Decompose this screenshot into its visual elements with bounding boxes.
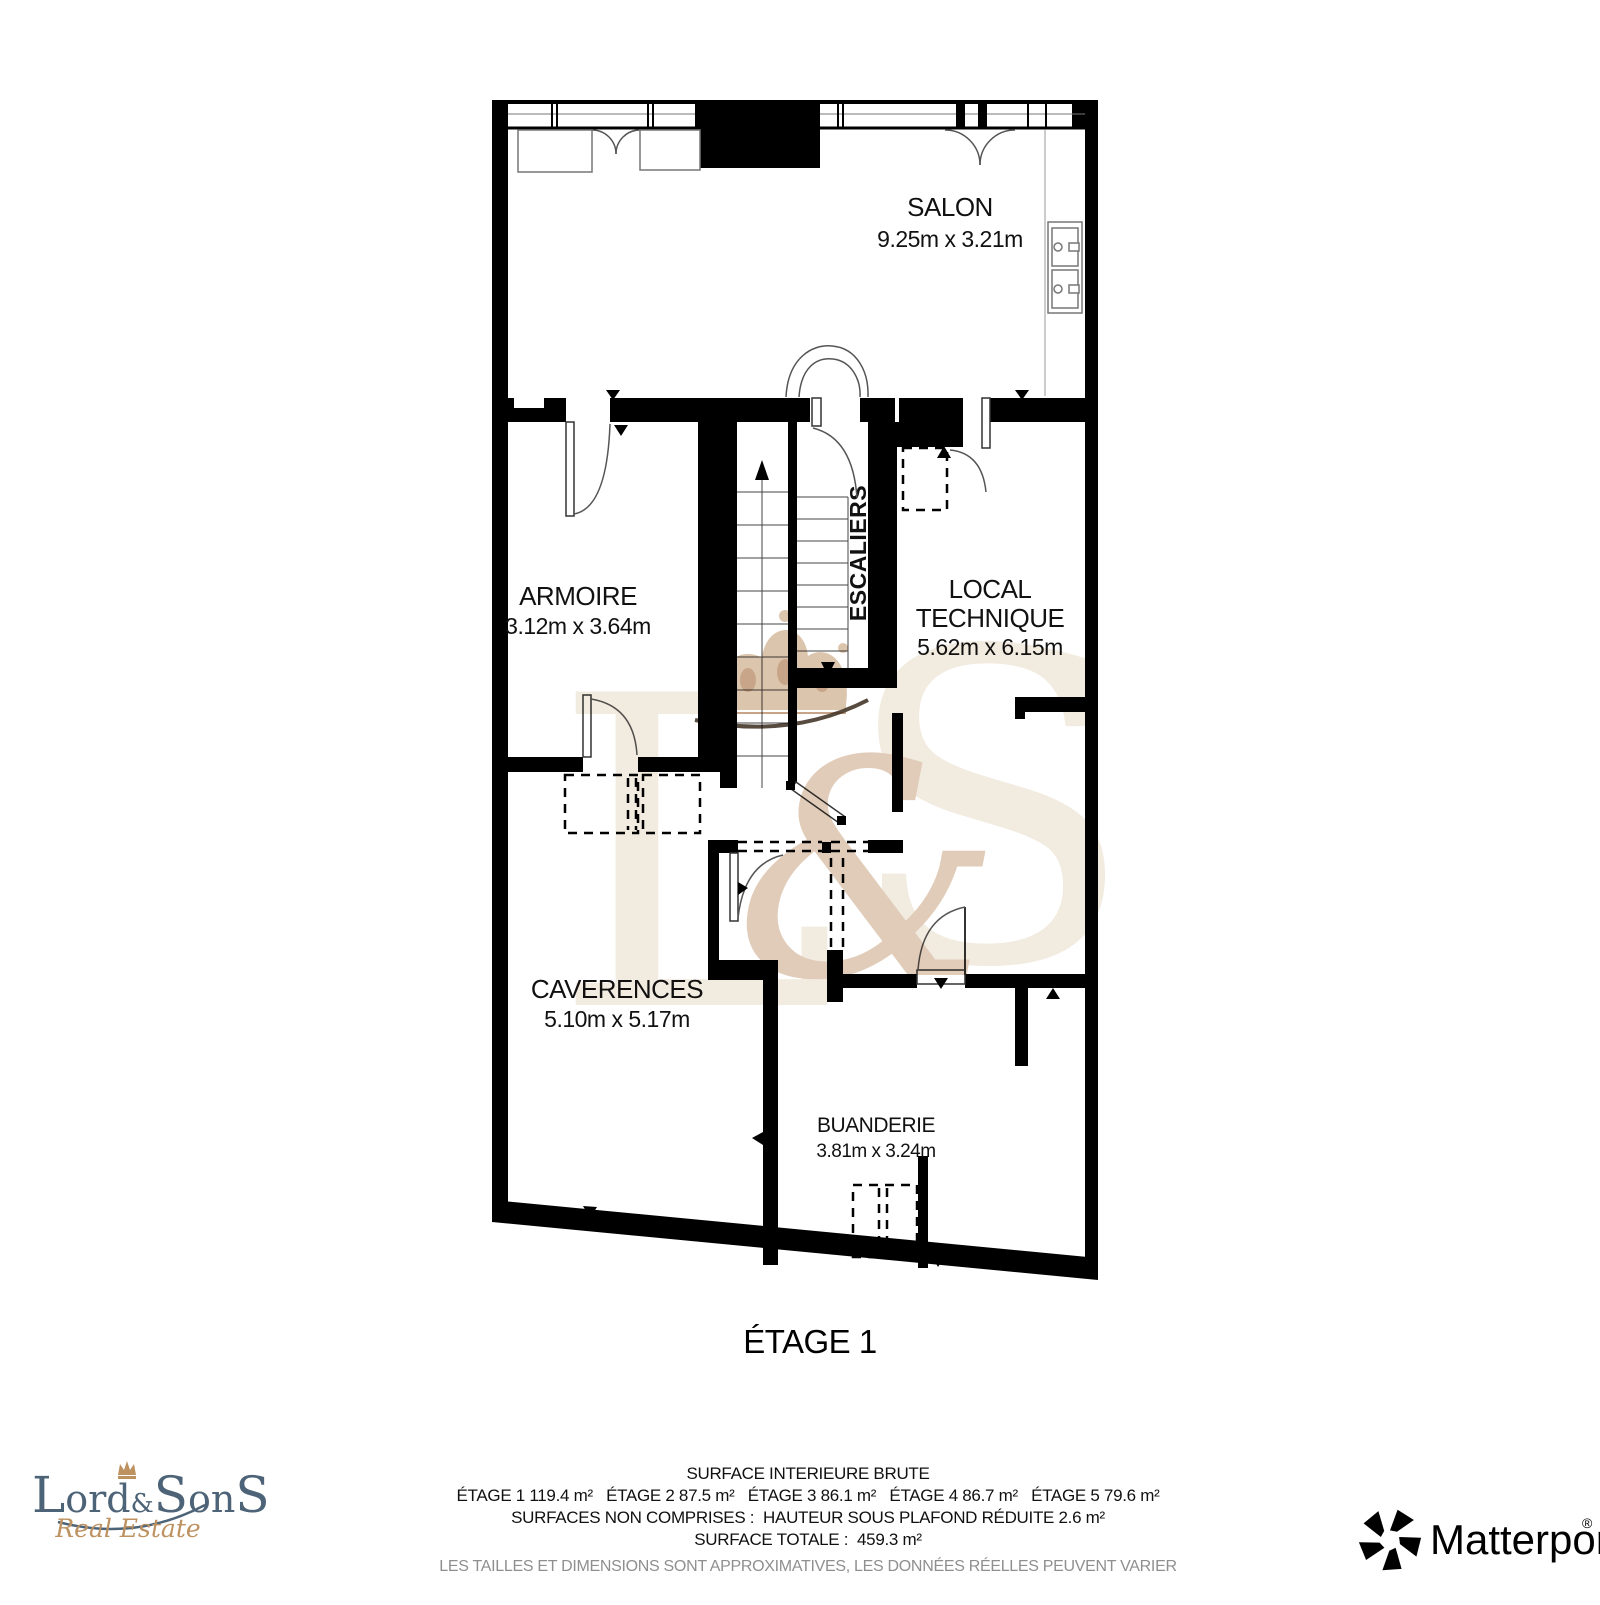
floor-surfaces: ÉTAGE 1 119.4 m² ÉTAGE 2 87.5 m² ÉTAGE 3… [457, 1486, 1161, 1505]
watermark-ampersand: & [735, 697, 1002, 1046]
surfaces-not-included: SURFACES NON COMPRISES : HAUTEUR SOUS PL… [511, 1508, 1105, 1527]
room-label-buanderie: BUANDERIE [817, 1114, 936, 1137]
stair-up-arrow-icon [755, 460, 769, 480]
double-door-right-arc [945, 130, 980, 165]
room-label-salon: SALON [907, 192, 993, 222]
room-dims-salon: 9.25m x 3.21m [877, 226, 1023, 252]
agency-logo: Lord&SonS Real Estate [32, 1461, 270, 1543]
matterport-wordmark: Matterport [1430, 1516, 1600, 1563]
lt-door-leaf [982, 398, 990, 448]
cabinet-right [640, 130, 700, 170]
matterport-logo: Matterport ® [1359, 1510, 1600, 1570]
disclaimer: LES TAILLES ET DIMENSIONS SONT APPROXIMA… [439, 1556, 1176, 1575]
wall-block-salon [695, 100, 820, 168]
stair-arch-outer [786, 346, 868, 397]
surface-total: SURFACE TOTALE : 459.3 m² [694, 1530, 922, 1549]
agency-tagline: Real Estate [54, 1514, 200, 1543]
sink-unit [1048, 222, 1082, 313]
salon-furniture [518, 130, 1082, 396]
agency-crown-icon [118, 1461, 136, 1479]
cabinet-left [518, 130, 592, 172]
stair-arch-inner [799, 359, 860, 397]
floor-plan-canvas: ESCALIERS [0, 0, 1600, 1600]
floor-title: ÉTAGE 1 [743, 1323, 876, 1360]
floor-plan-page: ESCALIERS [0, 0, 1600, 1600]
matterport-icon [1359, 1510, 1421, 1570]
surface-summary: SURFACE INTERIEURE BRUTE ÉTAGE 1 119.4 m… [439, 1464, 1176, 1575]
wall-left [492, 100, 508, 1210]
matterport-registered-icon: ® [1582, 1515, 1593, 1531]
agency-letter: S [235, 1466, 269, 1524]
agency-watermark: L S & [552, 562, 1137, 1107]
room-dims-buanderie: 3.81m x 3.24m [816, 1141, 935, 1162]
wall-buanderie-partition-2 [918, 1156, 928, 1268]
surface-header: SURFACE INTERIEURE BRUTE [686, 1464, 929, 1483]
armoire-door-leaf [566, 422, 574, 516]
double-door-left-arc [592, 130, 616, 154]
wall-bottom-slanted [492, 1200, 1098, 1280]
